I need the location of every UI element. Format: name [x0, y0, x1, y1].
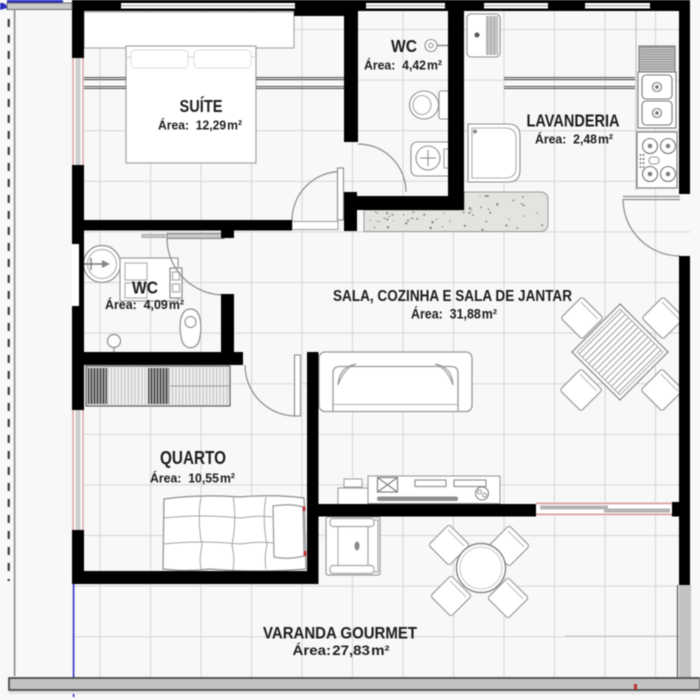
svg-text:Área: 12,29 m²: Área: 12,29 m² [158, 118, 243, 133]
svg-text:WC: WC [132, 278, 158, 298]
svg-text:QUARTO: QUARTO [160, 448, 226, 468]
svg-text:VARANDA GOURMET: VARANDA GOURMET [263, 624, 418, 643]
svg-text:SALA, COZINHA E SALA DE JANTAR: SALA, COZINHA E SALA DE JANTAR [333, 288, 572, 305]
svg-text:SUÍTE: SUÍTE [180, 95, 223, 116]
svg-text:Área: 4,09 m²: Área: 4,09 m² [105, 297, 185, 312]
svg-text:Área: 31,88 m²: Área: 31,88 m² [411, 307, 497, 322]
svg-text:Área: 4,42 m²: Área: 4,42 m² [364, 58, 443, 73]
svg-text:Área: 2,48 m²: Área: 2,48 m² [535, 132, 614, 147]
svg-text:WC: WC [391, 36, 417, 56]
svg-text:LAVANDERIA: LAVANDERIA [527, 111, 620, 131]
svg-text:Área: 10,55 m²: Área: 10,55 m² [150, 471, 236, 486]
svg-text:Área: 27,83 m²: Área: 27,83 m² [293, 642, 390, 658]
